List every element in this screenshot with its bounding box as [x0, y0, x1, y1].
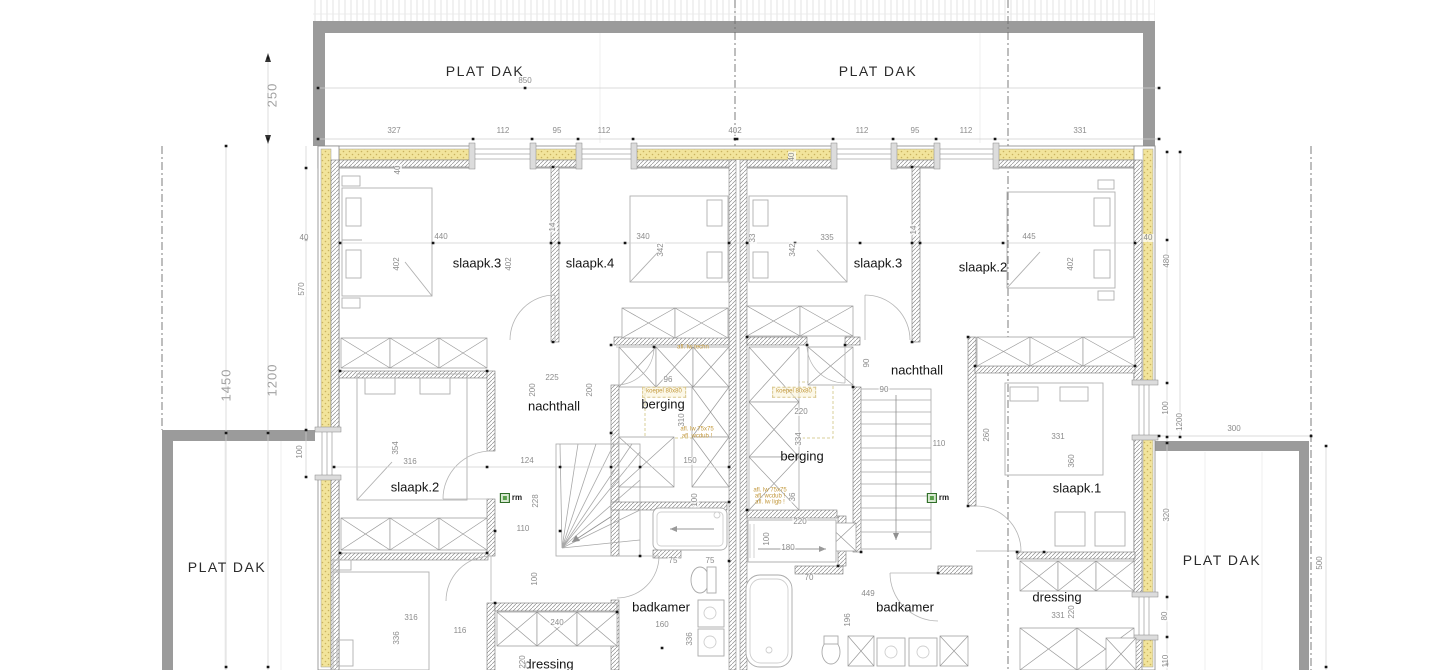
- dimension-label: 150: [682, 457, 697, 465]
- room-label: berging: [641, 398, 684, 411]
- dimension-label: 316: [403, 614, 418, 622]
- dimension-label: 14: [549, 222, 557, 233]
- dimension-label: 340: [635, 233, 650, 241]
- dimension-label: 90: [879, 386, 890, 394]
- dimension-label: 100: [296, 444, 304, 459]
- flat-roof-label: PLAT DAK: [446, 64, 524, 78]
- dimension-label: 33: [749, 233, 757, 244]
- dimension-label: 402: [505, 256, 513, 271]
- dimension-label: 336: [686, 631, 694, 646]
- dimension-label: 36: [789, 492, 797, 503]
- dimension-label: 116: [453, 627, 468, 635]
- dimension-label: 850: [517, 77, 532, 85]
- dimension-label: 342: [789, 242, 797, 257]
- dimension-label: 336: [393, 630, 401, 645]
- room-label: berging: [780, 450, 823, 463]
- dimension-label: 402: [393, 256, 401, 271]
- room-label: badkamer: [632, 601, 690, 614]
- technical-annotation: afl. lw techn: [677, 345, 709, 352]
- dimension-label: 228: [532, 493, 540, 508]
- dimension-label: 1200: [1176, 412, 1184, 432]
- dimension-label: 112: [959, 127, 974, 135]
- dimension-label: 40: [299, 234, 310, 242]
- dimension-label: 260: [983, 427, 991, 442]
- roof-left: [162, 430, 319, 670]
- dimension-label: 200: [586, 382, 594, 397]
- dimension-label: 1200: [266, 363, 279, 398]
- technical-annotation: koepel 80x80: [772, 387, 816, 398]
- dimension-label: 310: [678, 412, 686, 427]
- dimension-label: 240: [549, 619, 564, 627]
- dimension-label: 75: [705, 557, 716, 565]
- technical-annotation: afl. wcdub !: [682, 434, 712, 441]
- dimension-label: 95: [910, 127, 921, 135]
- room-label: nachthall: [528, 400, 580, 413]
- dimension-label: 110: [932, 440, 947, 448]
- dimension-label: 100: [691, 492, 699, 507]
- dimension-label: 1450: [220, 368, 233, 403]
- dimension-label: 160: [654, 621, 669, 629]
- room-label: slaapk.2: [959, 261, 1007, 274]
- dimension-label: 100: [1162, 400, 1170, 415]
- dimension-label: 95: [552, 127, 563, 135]
- exterior-walls: [318, 146, 1155, 670]
- room-label: badkamer: [876, 601, 934, 614]
- dimension-label: 40: [788, 152, 796, 163]
- dimension-label: 327: [386, 127, 401, 135]
- dimension-label: 402: [1067, 256, 1075, 271]
- smoke-detector-icon: [500, 493, 510, 503]
- room-label: slaapk.2: [391, 481, 439, 494]
- dimension-label: 112: [855, 127, 870, 135]
- dimension-label: 80: [1161, 611, 1169, 622]
- technical-annotation: afl. lw ligb !: [755, 500, 785, 507]
- room-label: slaapk.4: [566, 257, 614, 270]
- dimension-label: 40: [1143, 234, 1154, 242]
- technical-annotation: afl. lw 75x75: [680, 427, 713, 434]
- dimension-label: 220: [519, 654, 527, 669]
- dimension-label: 96: [663, 376, 674, 384]
- dimension-label: 196: [844, 612, 852, 627]
- dimension-label: 100: [531, 571, 539, 586]
- floor-plan: PLAT DAKPLAT DAKPLAT DAKPLAT DAKslaapk.3…: [0, 0, 1440, 670]
- dimension-label: 225: [544, 374, 559, 382]
- technical-annotation: koepel 80x80: [642, 387, 686, 398]
- dimension-label: 360: [1068, 453, 1076, 468]
- dimension-label: 220: [793, 408, 808, 416]
- room-label: dressing: [1032, 591, 1081, 604]
- dimension-label: 250: [266, 82, 279, 109]
- smoke-detector-marker: rm: [927, 493, 949, 503]
- dimension-label: 100: [763, 531, 771, 546]
- room-label: nachthall: [891, 364, 943, 377]
- dimension-label: 40: [394, 165, 402, 176]
- dimension-label: 220: [792, 518, 807, 526]
- flat-roof-label: PLAT DAK: [188, 560, 266, 574]
- dimension-label: 440: [433, 233, 448, 241]
- dimension-label: 480: [1163, 253, 1171, 268]
- room-label: slaapk.3: [453, 257, 501, 270]
- dimension-label: 14: [910, 225, 918, 236]
- smoke-detector-icon: [927, 493, 937, 503]
- dimension-label: 570: [298, 281, 306, 296]
- dimension-label: 331: [1050, 612, 1065, 620]
- dimension-label: 342: [657, 242, 665, 257]
- dimension-label: 449: [860, 590, 875, 598]
- dimension-label: 320: [1163, 507, 1171, 522]
- roof-hatch-strip: [313, 0, 1155, 21]
- dimension-label: 354: [392, 440, 400, 455]
- dimension-label: 335: [819, 234, 834, 242]
- dimension-label: 75: [668, 557, 679, 565]
- dimension-label: 316: [402, 458, 417, 466]
- dimension-label: 112: [496, 127, 511, 135]
- dimension-label: 331: [1050, 433, 1065, 441]
- room-label: dressing: [524, 658, 573, 670]
- dimension-label: 124: [519, 457, 534, 465]
- dimension-label: 445: [1021, 233, 1036, 241]
- dimension-label: 331: [1072, 127, 1087, 135]
- dimension-label: 90: [863, 358, 871, 369]
- dimension-label: 334: [795, 431, 803, 446]
- dimension-label: 70: [804, 574, 815, 582]
- dimension-label: 110: [516, 525, 531, 533]
- room-label: slaapk.3: [854, 257, 902, 270]
- dimension-label: 110: [1162, 654, 1170, 669]
- dimension-label: 220: [1068, 604, 1076, 619]
- smoke-detector-marker: rm: [500, 493, 522, 503]
- dimension-label: 180: [780, 544, 795, 552]
- dimension-label: 112: [597, 127, 612, 135]
- flat-roof-label: PLAT DAK: [839, 64, 917, 78]
- dimension-label: 402: [727, 127, 742, 135]
- dimension-label: 300: [1226, 425, 1241, 433]
- flat-roof-label: PLAT DAK: [1183, 553, 1261, 567]
- dimension-label: 500: [1316, 555, 1324, 570]
- room-label: slaapk.1: [1053, 482, 1101, 495]
- dimension-label: 200: [529, 382, 537, 397]
